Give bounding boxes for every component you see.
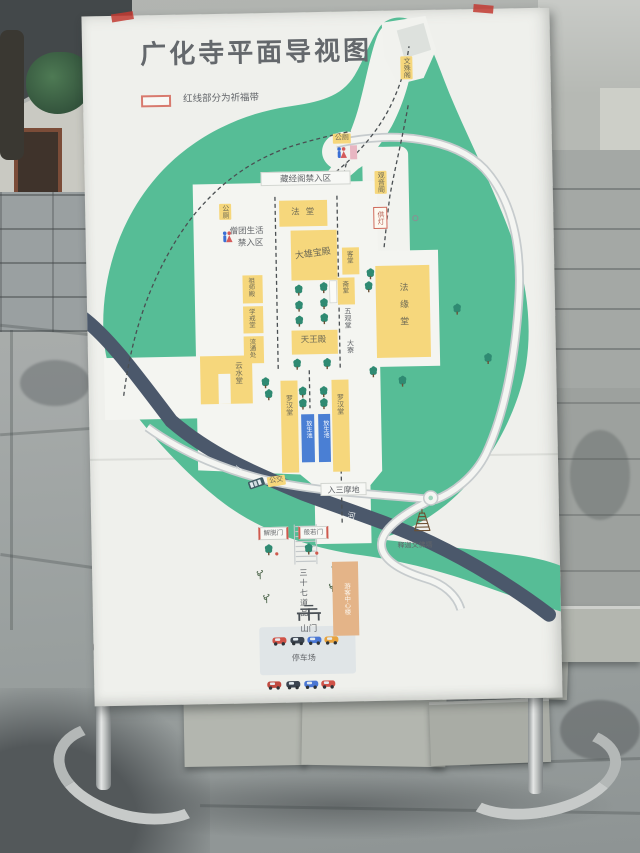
label-wenshu-pavilion: 文殊阁 (400, 56, 412, 79)
label-toilet-left: 公厕 (219, 204, 231, 220)
car-icon (304, 681, 318, 689)
label-arhat-hall-left: 罗汉堂 (285, 395, 293, 416)
car-icon (272, 637, 286, 645)
label-fayuan-hall: 法缘堂 (397, 282, 408, 333)
label-guanyin-pavilion: 观音阁 (374, 171, 386, 194)
label-thirty-seven-path: 三十七道品 (298, 568, 308, 618)
label-liberation-gate: 解脱门 (258, 527, 288, 541)
lamp-dot (275, 552, 278, 555)
label-dining-hall: 斋堂 (341, 280, 348, 293)
map-sign-board: 广化寺平面导视图 红线部分为祈福带 文殊阁 公厕 公厕 藏经阁禁入区 法堂 僧团… (81, 8, 562, 707)
paver-joint (0, 427, 95, 437)
label-release-pond-right: 放生池 (321, 420, 328, 438)
label-pagoda: 释迦文佛塔 (398, 542, 433, 550)
pine-icon (257, 570, 263, 579)
label-cloud-water-hall: 云水堂 (234, 362, 243, 385)
label-river-2: 河 (346, 512, 356, 522)
temple-map-graphic (81, 8, 562, 707)
pine-icon (264, 594, 270, 603)
paver-joint (10, 330, 13, 630)
legend-swatch (141, 95, 171, 108)
car-icon (267, 681, 281, 689)
label-arhat-hall-right: 罗汉堂 (336, 394, 344, 415)
small-annex (330, 281, 337, 303)
label-precepts-hall: 学戒堂 (247, 308, 255, 328)
paver-joint (0, 553, 99, 570)
legend-text: 红线部分为祈福带 (183, 93, 259, 105)
label-release-pond-left: 放生池 (304, 420, 311, 438)
toilet-door (350, 145, 357, 159)
tree-icon (265, 544, 273, 555)
label-samadhi-gate: 入三摩地 (320, 482, 366, 496)
label-five-contemplations-hall: 五观堂 (343, 307, 351, 328)
car-icon (307, 637, 321, 645)
tree-icon (305, 543, 313, 554)
label-prajna-gate: 般若门 (298, 526, 328, 540)
label-mountain-gate: 山门 (300, 625, 317, 635)
wall-stain (570, 430, 630, 520)
ground-stain (20, 360, 90, 406)
label-lamp-offering: 供灯 (373, 207, 387, 229)
yunshui-notch (218, 374, 231, 404)
label-patriarch-hall: 祖师殿 (246, 277, 254, 297)
label-distribution-office: 流通处 (248, 338, 256, 358)
tree-trunk (0, 30, 24, 160)
label-kitchen: 大寮 (346, 339, 354, 353)
photo-of-temple-map-sign: 广化寺平面导视图 红线部分为祈福带 文殊阁 公厕 公厕 藏经阁禁入区 法堂 僧团… (0, 0, 640, 853)
label-sutra-restricted-area: 藏经阁禁入区 (260, 170, 350, 186)
car-icon (321, 680, 335, 688)
label-toilet-top: 公厕 (333, 133, 351, 143)
sign-title: 广化寺平面导视图 (140, 37, 373, 70)
label-parking-lot: 停车场 (292, 654, 316, 663)
lamp-dot (315, 552, 318, 555)
label-monk-area-1: 僧团生活 (230, 227, 264, 237)
label-monk-area-2: 禁入区 (238, 239, 264, 249)
car-icon (324, 636, 338, 644)
label-visitor-center: 游客中心楼 (332, 561, 359, 635)
car-icon (290, 637, 304, 645)
label-guest-hall: 客堂 (345, 250, 352, 263)
label-heavenly-kings-hall: 天王殿 (301, 336, 327, 346)
concrete-block (558, 606, 640, 662)
label-fa-hall: 法堂 (291, 208, 320, 218)
car-icon (286, 681, 300, 689)
